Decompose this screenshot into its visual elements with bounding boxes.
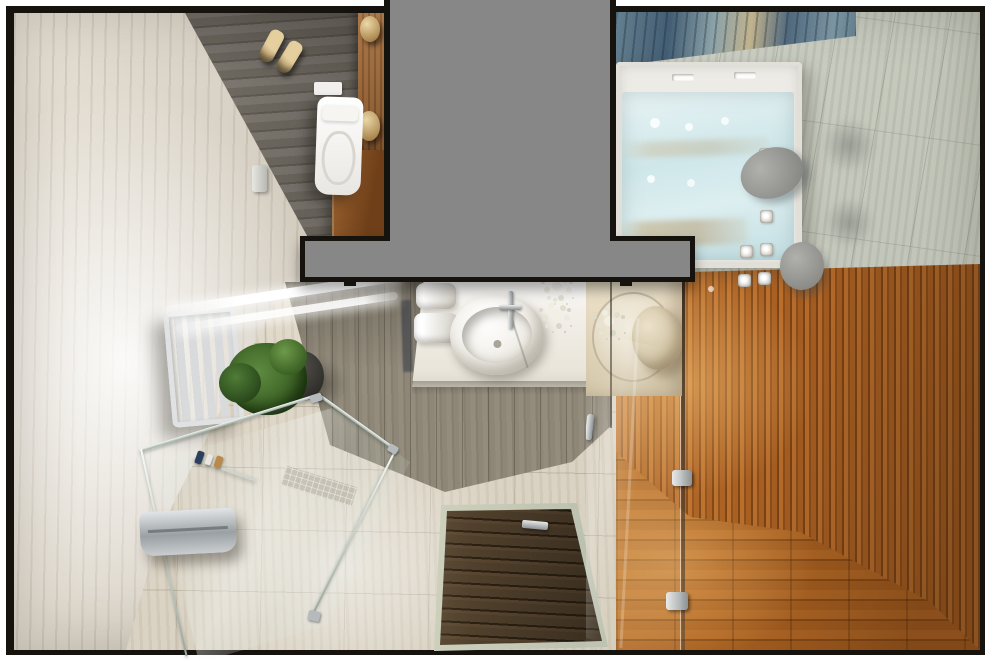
glass-reflection-streak (586, 334, 666, 642)
tub-jet (740, 245, 753, 258)
gray-wall-cut-mask (390, 0, 610, 243)
tub-jet (758, 272, 771, 285)
flush-plate (314, 82, 342, 95)
tub-jet (760, 210, 773, 223)
wall-shadow (822, 117, 876, 173)
door-pivot-mark (620, 280, 632, 286)
door-pivot-mark (344, 280, 356, 286)
shower-bench (139, 508, 237, 557)
sauna-glass-door-zone (586, 278, 682, 650)
chrome-faucet (508, 291, 513, 329)
water-jets (650, 118, 660, 128)
ceramic-jar (360, 16, 380, 42)
bathroom-top-view-render (0, 0, 990, 660)
flower-reflection (552, 281, 562, 291)
toilet-paper-holder (252, 165, 267, 192)
tub-rim-slot (734, 72, 756, 79)
glass-foot (307, 610, 321, 622)
tub-rim-slot (672, 74, 694, 81)
tub-jet (760, 243, 773, 256)
wall-shadow (824, 197, 874, 249)
gray-wall-cut-mask (305, 241, 690, 277)
faucet-handle (499, 305, 521, 310)
counter-shadow (412, 381, 590, 395)
wall-hung-toilet (314, 96, 363, 196)
tub-jet (738, 274, 751, 287)
flower-arrangement (604, 316, 614, 326)
potted-plant (227, 343, 307, 415)
rolled-towel (416, 283, 456, 309)
flower-arrangement (550, 309, 560, 319)
